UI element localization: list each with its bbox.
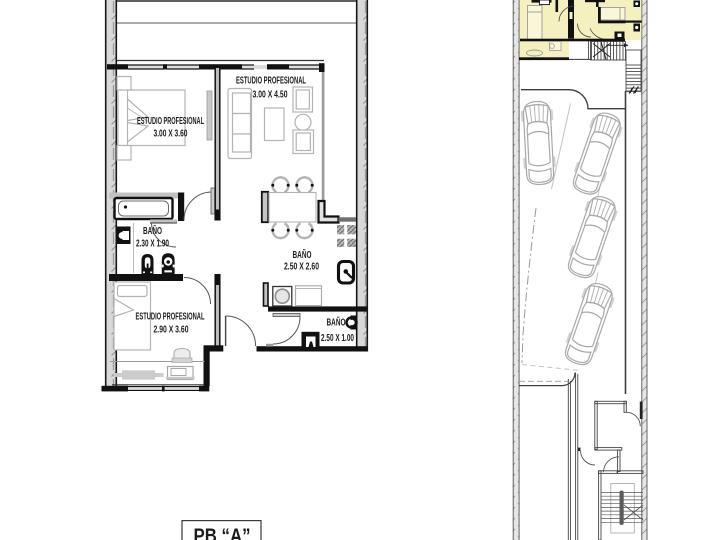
svg-text:BAÑO: BAÑO: [143, 224, 162, 237]
svg-text:2.90 X 3.60: 2.90 X 3.60: [154, 324, 189, 335]
svg-text:ESTUDIO PROFESIONAL: ESTUDIO PROFESIONAL: [137, 116, 204, 127]
svg-text:BAÑO: BAÑO: [293, 248, 312, 261]
svg-text:3.00 X 3.60: 3.00 X 3.60: [154, 129, 188, 140]
svg-text:ESTUDIO PROFESIONAL: ESTUDIO PROFESIONAL: [136, 311, 205, 322]
svg-text:2.50 X 2.60: 2.50 X 2.60: [284, 261, 319, 272]
svg-text:2.30 X 1.90: 2.30 X 1.90: [136, 238, 169, 249]
svg-text:3.00 X 4.50: 3.00 X 4.50: [253, 89, 288, 100]
svg-text:BAÑO: BAÑO: [327, 315, 346, 328]
svg-text:ESTUDIO PROFESIONAL: ESTUDIO PROFESIONAL: [236, 76, 306, 87]
svg-text:2.50 X 1.00: 2.50 X 1.00: [321, 333, 354, 344]
svg-text:PB “A”: PB “A”: [194, 525, 251, 540]
